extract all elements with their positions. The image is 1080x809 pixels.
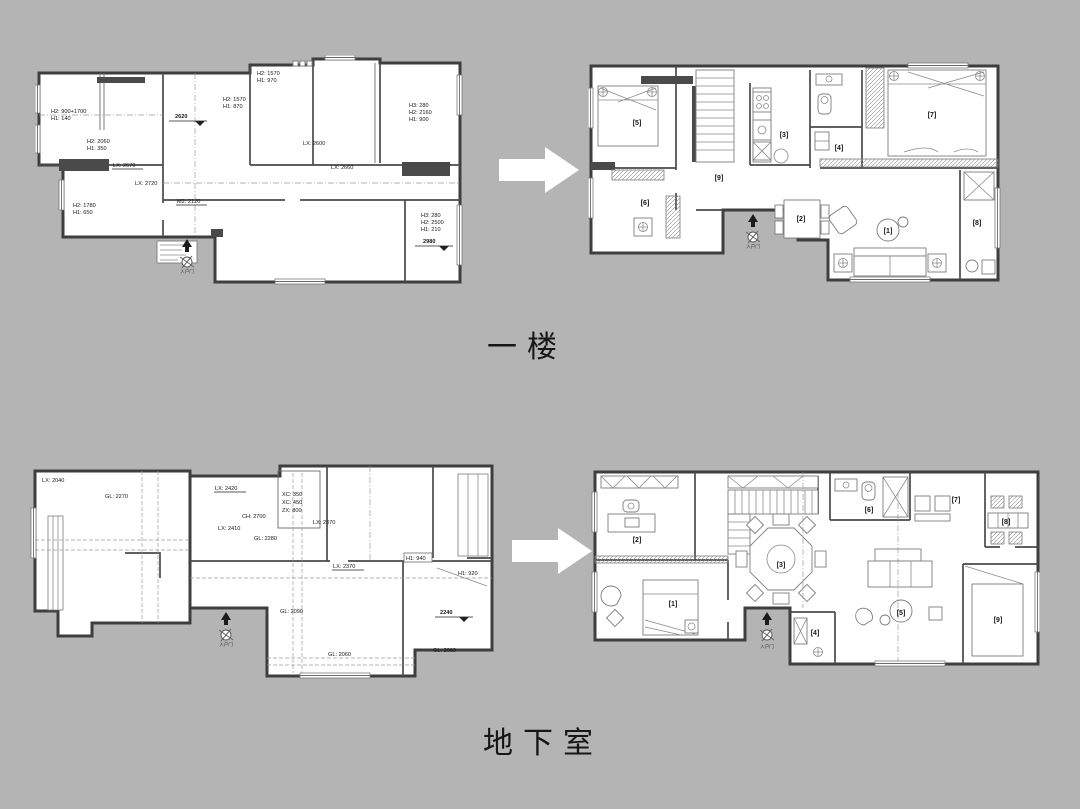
room-number: [4] (835, 145, 844, 152)
room-number: [5] (897, 610, 906, 617)
dim-label: CH: 2700 (242, 514, 266, 520)
dim-label: H2: 1570 (257, 71, 280, 77)
first-floor-layout-plan: [5] [6] [9] [3] [4] [7] [2] [1] [8] 入户门 (588, 58, 1003, 288)
room-number: [8] (973, 220, 982, 227)
room-number: [9] (715, 175, 724, 182)
right-arrow-icon (512, 528, 592, 574)
dim-label: H1: 140 (51, 116, 71, 122)
dim-label: H2: 2160 (409, 110, 432, 116)
corner-lamp-icon (976, 72, 985, 81)
dim-label: H2: 900+1700 (51, 109, 86, 115)
room-number: [6] (641, 200, 650, 207)
dim-label: H1: 920 (458, 571, 478, 577)
corner-lamp-icon (648, 88, 657, 97)
dim-label: H1: 940 (406, 556, 426, 562)
room-number: [3] (777, 562, 786, 569)
dim-label: LX: 2420 (215, 486, 237, 492)
dim-label: H1: 900 (409, 117, 429, 123)
room-number: [3] (780, 132, 789, 139)
bedroom-5-furniture (598, 86, 658, 146)
dim-label: H1: 870 (223, 104, 243, 110)
side-table-plant-icon (839, 259, 848, 268)
room-number: [8] (1002, 519, 1011, 526)
entry-label: 入户门 (219, 641, 233, 648)
level-label: 2980 (423, 239, 435, 245)
room-number: [9] (994, 617, 1003, 624)
dim-label: ZX: 800 (282, 508, 302, 514)
corner-lamp-icon (890, 72, 899, 81)
wall-hatch (820, 159, 998, 167)
north-arrow-icon (746, 214, 760, 243)
dim-label: GL: 2060 (433, 648, 456, 654)
plant-icon (639, 223, 648, 232)
bedroom-7-furniture (888, 70, 986, 156)
stairs (696, 70, 734, 162)
plant-icon (814, 648, 823, 657)
north-arrow-icon (760, 612, 774, 641)
entry-label: 入户门 (180, 268, 194, 275)
dim-label: LX: 2600 (303, 141, 325, 147)
floor-plan-collage: H2: 900+1700 H1: 140 H2: 2060 H1: 350 26… (0, 0, 1080, 809)
bath-4-furniture (815, 132, 829, 150)
right-arrow-icon (499, 147, 579, 193)
corner-lamp-icon (599, 88, 608, 97)
first-floor-measured-plan: H2: 900+1700 H1: 140 H2: 2060 H1: 350 26… (35, 55, 465, 290)
entry-label: 入户门 (760, 643, 774, 650)
dim-label: H2: 1570 (223, 97, 246, 103)
first-floor-title: 一楼 (427, 322, 627, 366)
floor-outline-right (190, 466, 492, 676)
room-number: [2] (797, 216, 806, 223)
dim-label: H3: 280 (409, 103, 429, 109)
room-number: [6] (865, 507, 874, 514)
basement-layout-plan: [2] [1] [3] [4] [5] [6] [7] [8] [9] 入户门 (585, 452, 1040, 692)
dim-label: GL: 2090 (280, 609, 303, 615)
room-number: [2] (633, 537, 642, 544)
dim-label: GL: 2270 (105, 494, 128, 500)
dim-label: H2: 2060 (87, 139, 110, 145)
entry-label: 入户门 (746, 243, 760, 250)
dim-label: LX: 2720 (135, 181, 157, 187)
transform-arrow-bottom (512, 527, 594, 575)
side-table-plant-icon (933, 259, 942, 268)
room-number: [5] (633, 120, 642, 127)
entrance-marker: 入户门 (746, 214, 760, 250)
dim-label: H2: 1780 (73, 203, 96, 209)
dim-label: LX: 2040 (42, 478, 64, 484)
entrance-marker: 入户门 (219, 612, 233, 648)
dim-label: XC: 350 (282, 492, 302, 498)
basement-measured-plan: LX: 2040 GL: 2270 LX: 2420 CH: 2700 LX: … (30, 458, 505, 683)
wardrobe (866, 68, 884, 128)
level-label: 2620 (175, 114, 187, 120)
dim-label: XC: 450 (282, 500, 302, 506)
dim-label: M2: 2120 (177, 199, 200, 205)
basement-title: 地下室 (443, 718, 643, 762)
dim-label: H1: 650 (73, 210, 93, 216)
room-number: [1] (669, 601, 678, 608)
dim-label: GL: 2060 (328, 652, 351, 658)
dim-label: LX: 2370 (333, 564, 355, 570)
room-number: [7] (928, 112, 937, 119)
dim-label: LX: 2410 (218, 526, 240, 532)
entrance-marker: 入户门 (760, 612, 774, 650)
dim-label: H1: 350 (87, 146, 107, 152)
room-number: [4] (811, 630, 820, 637)
dim-label: LX: 2660 (331, 165, 353, 171)
dim-label: H1: 210 (421, 227, 441, 233)
room-number: [7] (952, 497, 961, 504)
dim-label: LX: 2670 (113, 163, 135, 169)
wall-hatch (595, 556, 728, 563)
transform-arrow-top (499, 146, 581, 194)
north-arrow-icon (219, 612, 233, 641)
dim-label: H1: 970 (257, 78, 277, 84)
dim-label: GL: 2280 (254, 536, 277, 542)
dim-label: H3: 280 (421, 213, 441, 219)
room-number: [1] (884, 228, 893, 235)
level-label: 2240 (440, 610, 452, 616)
dim-label: LX: 2370 (313, 520, 335, 526)
dim-label: H2: 2500 (421, 220, 444, 226)
